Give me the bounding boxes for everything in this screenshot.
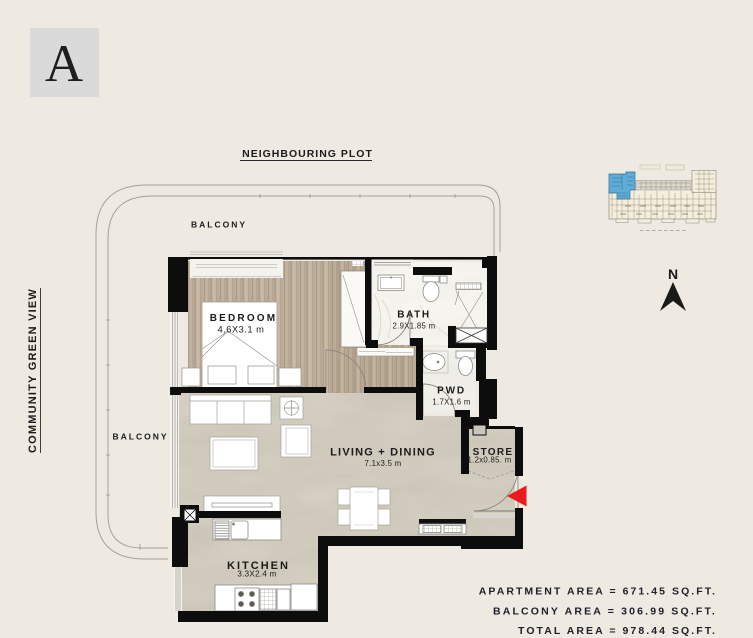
svg-text:3.3X2.4 m: 3.3X2.4 m: [237, 570, 276, 579]
svg-text:LIVING + DINING: LIVING + DINING: [330, 447, 436, 459]
svg-text:TOTAL AREA = 978.44 SQ.FT.: TOTAL AREA = 978.44 SQ.FT.: [518, 625, 717, 637]
svg-text:2.9X1.85 m: 2.9X1.85 m: [393, 322, 436, 331]
svg-text:BALCONY: BALCONY: [112, 432, 168, 442]
svg-text:PWD: PWD: [437, 386, 466, 397]
svg-text:7.1x3.5 m: 7.1x3.5 m: [365, 459, 402, 468]
svg-text:A: A: [45, 35, 83, 93]
svg-text:1.7X1.6 m: 1.7X1.6 m: [432, 398, 470, 407]
svg-text:1.2x0.85. m: 1.2x0.85. m: [467, 456, 511, 465]
svg-text:N: N: [668, 266, 678, 282]
svg-text:BATH: BATH: [397, 310, 430, 321]
svg-text:COMMUNITY GREEN VIEW: COMMUNITY GREEN VIEW: [27, 288, 39, 453]
svg-text:APARTMENT AREA = 671.45 SQ.FT.: APARTMENT AREA = 671.45 SQ.FT.: [479, 586, 717, 598]
svg-text:NEIGHBOURING PLOT: NEIGHBOURING PLOT: [242, 148, 373, 160]
svg-text:BALCONY: BALCONY: [191, 220, 247, 230]
svg-text:4.6X3.1 m: 4.6X3.1 m: [218, 325, 265, 335]
svg-text:BALCONY AREA = 306.99 SQ.FT.: BALCONY AREA = 306.99 SQ.FT.: [493, 606, 717, 618]
svg-text:BEDROOM: BEDROOM: [210, 313, 278, 324]
